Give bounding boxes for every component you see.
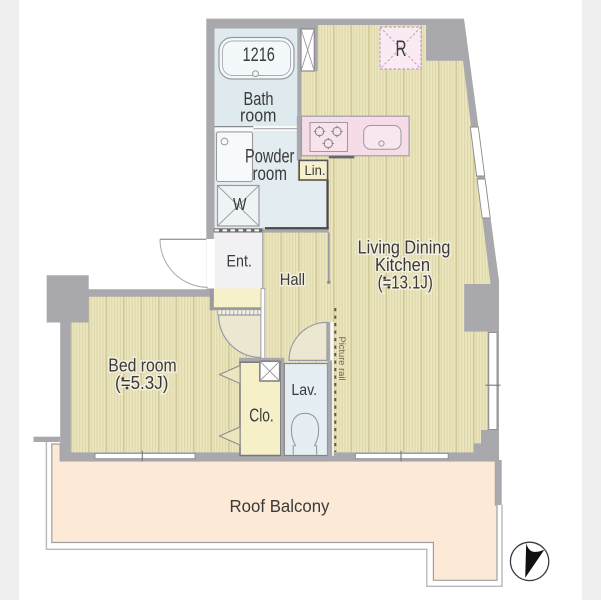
svg-text:room: room	[253, 164, 287, 185]
svg-text:room: room	[240, 105, 276, 125]
svg-text:Roof Balcony: Roof Balcony	[230, 496, 330, 516]
svg-text:Picture rail: Picture rail	[337, 337, 347, 381]
svg-text:Ent.: Ent.	[227, 252, 252, 270]
svg-text:W: W	[233, 194, 247, 214]
svg-text:1216: 1216	[243, 45, 275, 66]
svg-text:(=13.1J): (=13.1J)	[378, 272, 433, 293]
svg-text:Clo.: Clo.	[249, 406, 274, 426]
svg-text:Lin.: Lin.	[305, 162, 326, 178]
svg-text:R: R	[396, 36, 407, 61]
svg-text:Lav.: Lav.	[291, 382, 317, 399]
svg-text:(=5.3J): (=5.3J)	[115, 372, 168, 393]
svg-text:Hall: Hall	[280, 271, 305, 289]
